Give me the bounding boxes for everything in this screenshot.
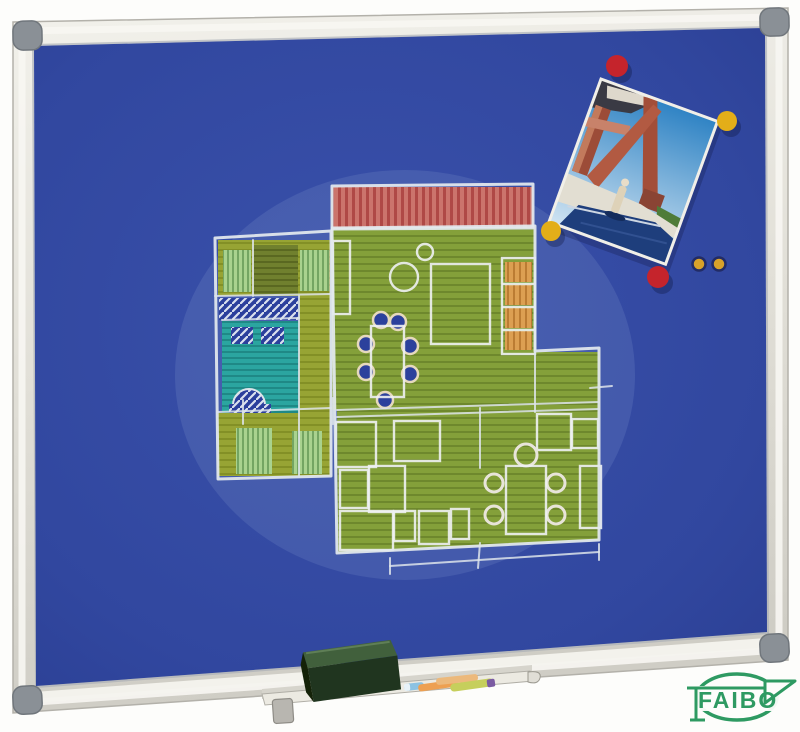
magnet-red-top: [606, 55, 628, 77]
wardrobe: [502, 258, 535, 354]
magnet-red-bottom: [647, 266, 669, 288]
tray-bracket: [272, 698, 294, 723]
magnet-yellow-left: [541, 221, 561, 241]
tray-end-hook: [528, 672, 540, 683]
magnet-small-yellow-2: [713, 258, 726, 271]
magnet-yellow-right: [717, 111, 737, 131]
product-photo: FAIBO: [0, 0, 800, 732]
board-scene: FAIBO: [0, 0, 800, 732]
corner-cap-top-left: [13, 21, 43, 51]
chalk-purple-tip: [486, 678, 495, 687]
terrace-strip: [332, 187, 533, 228]
corner-cap-top-right: [760, 8, 789, 37]
corner-cap-bottom-right: [759, 633, 789, 662]
brand-text: FAIBO: [698, 687, 778, 713]
magnet-small-yellow-1: [693, 258, 706, 271]
corner-cap-bottom-left: [12, 685, 42, 714]
